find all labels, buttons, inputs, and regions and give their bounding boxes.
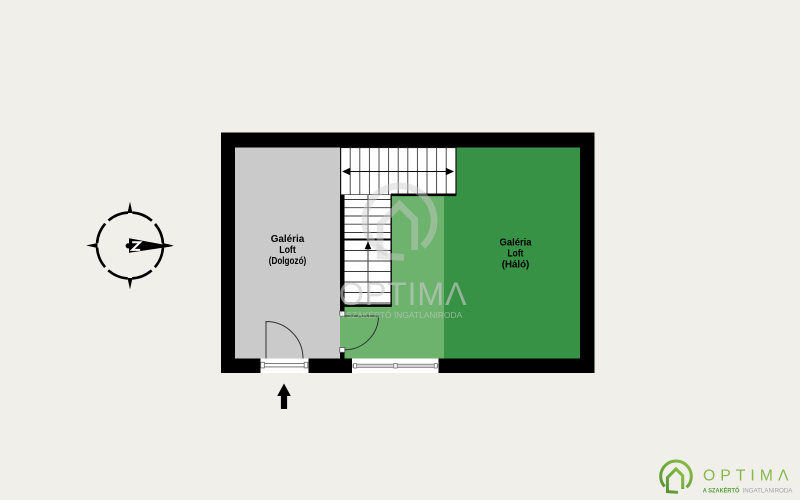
svg-text:Galéria: Galéria [271,234,305,245]
svg-text:(Háló): (Háló) [502,260,530,271]
svg-text:INGATLANIRODA: INGATLANIRODA [743,488,793,495]
svg-text:(Dolgozó): (Dolgozó) [269,256,307,267]
svg-text:A SZAKÉRTŐ: A SZAKÉRTŐ [703,486,740,495]
svg-text:Loft: Loft [508,248,524,259]
svg-text:Loft: Loft [279,245,296,256]
svg-text:A SZAKÉRTŐ INGATLANIRODA: A SZAKÉRTŐ INGATLANIRODA [339,310,463,320]
svg-text:OPTIMΛ: OPTIMΛ [339,276,467,312]
svg-text:Galéria: Galéria [500,237,532,248]
